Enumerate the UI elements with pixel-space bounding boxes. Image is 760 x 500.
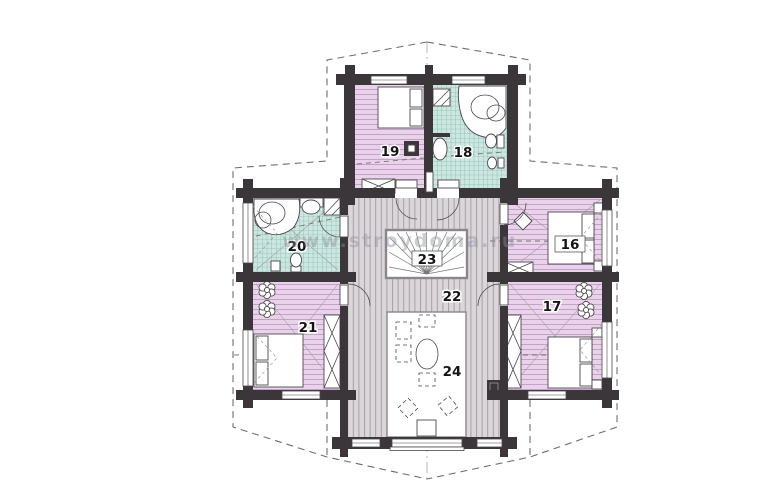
door-leaf-18-19 (426, 172, 433, 192)
bidet-symbol (488, 157, 505, 169)
window-symbol (452, 76, 485, 84)
wardrobe-symbol (324, 315, 340, 388)
plant-symbol (259, 300, 275, 317)
window-symbol (528, 391, 566, 399)
room-18-label: 18 (454, 145, 473, 161)
pillow-symbol (410, 89, 422, 107)
window-symbol (352, 439, 380, 447)
window-symbol (282, 391, 320, 399)
room-23-label: 23 (418, 252, 437, 268)
toilet-symbol (291, 253, 302, 272)
balcony-window-symbol (390, 439, 464, 451)
window-symbol (371, 76, 407, 84)
floor-plan-drawing: 19 18 20 21 16 17 22 23 24 (0, 0, 760, 500)
room-24-label: 24 (443, 364, 462, 380)
pillow-symbol (410, 109, 422, 126)
room-16-label: 16 (561, 237, 580, 253)
floor-plan-canvas: 19 18 20 21 16 17 22 23 24 www.stroydoma… (0, 0, 760, 500)
room-22-label: 22 (443, 289, 462, 305)
plant-symbol (259, 281, 275, 298)
stool-symbol (417, 420, 436, 436)
room-19-label: 19 (381, 144, 400, 160)
stove-inner (408, 145, 415, 152)
sink-symbol (433, 138, 447, 160)
plant-symbol (576, 282, 592, 299)
room-20-label: 20 (288, 239, 307, 255)
room-17-label: 17 (543, 299, 562, 315)
room-21-label: 21 (299, 320, 318, 336)
window-symbol (477, 439, 502, 447)
shower-symbol (324, 198, 340, 215)
shower-symbol (433, 89, 450, 106)
cabinet-symbol (271, 261, 280, 271)
bed-symbol (254, 334, 303, 387)
toilet-symbol (486, 134, 505, 148)
plant-symbol (578, 301, 594, 318)
